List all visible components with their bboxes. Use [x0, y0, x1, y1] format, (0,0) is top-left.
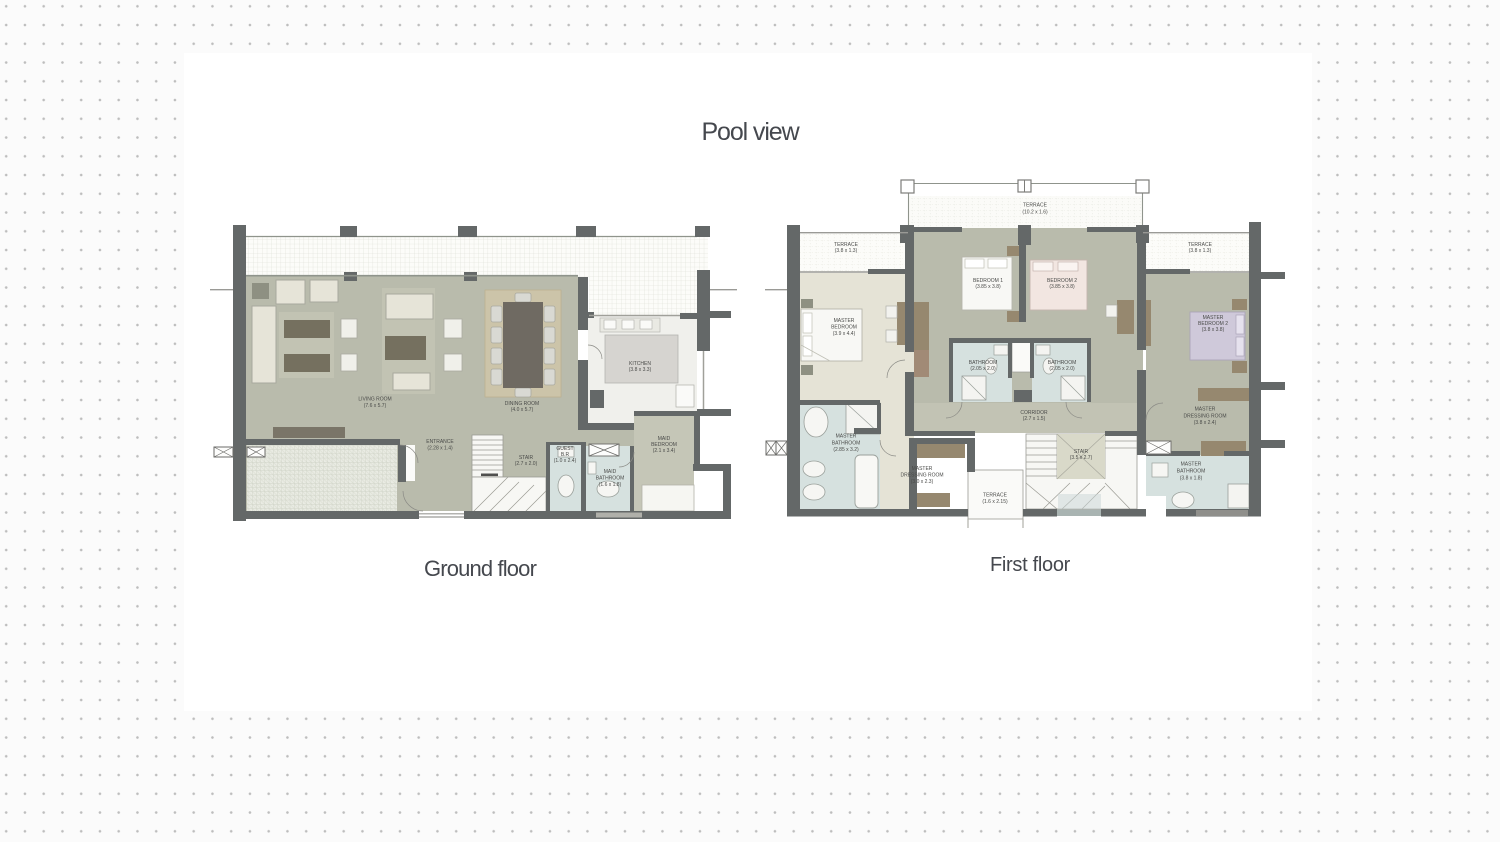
svg-text:(3.5 x 2.7): (3.5 x 2.7) [1070, 455, 1093, 461]
svg-text:MAID: MAID [604, 469, 617, 475]
svg-text:LIVING ROOM: LIVING ROOM [358, 397, 391, 403]
svg-text:DRESSING ROOM: DRESSING ROOM [1183, 414, 1226, 420]
svg-text:ENTRANCE: ENTRANCE [426, 439, 454, 445]
svg-text:(2.85 x 3.2): (2.85 x 3.2) [833, 447, 859, 453]
svg-text:(3.85 x 3.8): (3.85 x 3.8) [975, 284, 1001, 290]
svg-text:(3.0 x 2.3): (3.0 x 2.3) [911, 479, 934, 485]
svg-text:DRESSING ROOM: DRESSING ROOM [900, 473, 943, 479]
svg-text:BATHROOM: BATHROOM [1177, 469, 1206, 475]
svg-text:TERRACE: TERRACE [983, 493, 1008, 499]
svg-text:(3.85 x 3.8): (3.85 x 3.8) [1049, 284, 1075, 290]
svg-text:(3.8 x 3.8): (3.8 x 3.8) [1202, 327, 1225, 333]
svg-text:(4.0 x 5.7): (4.0 x 5.7) [511, 407, 534, 413]
svg-text:(3.8 x 3.3): (3.8 x 3.3) [629, 367, 652, 373]
svg-text:(1.0 x 2.4): (1.0 x 2.4) [554, 458, 577, 464]
svg-text:BEDROOM: BEDROOM [831, 325, 857, 331]
svg-text:(2.7 x 2.0): (2.7 x 2.0) [515, 461, 538, 467]
svg-text:MASTER: MASTER [836, 434, 857, 440]
svg-text:(10.2 x 1.6): (10.2 x 1.6) [1022, 210, 1048, 216]
svg-text:(1.6 x 1.8): (1.6 x 1.8) [599, 482, 622, 488]
svg-text:MASTER: MASTER [1195, 407, 1216, 413]
svg-text:(2.7 x 1.5): (2.7 x 1.5) [1023, 416, 1046, 422]
svg-text:(1.6 x 2.15): (1.6 x 2.15) [982, 499, 1008, 505]
svg-text:(2.1 x 3.4): (2.1 x 3.4) [653, 448, 676, 454]
svg-text:(3.8 x 2.4): (3.8 x 2.4) [1194, 420, 1217, 426]
svg-text:MASTER: MASTER [834, 318, 855, 324]
svg-text:TERRACE: TERRACE [1023, 203, 1048, 209]
svg-text:BATHROOM: BATHROOM [832, 441, 861, 447]
svg-text:(7.6 x 5.7): (7.6 x 5.7) [364, 403, 387, 409]
svg-text:(2.28 x 1.4): (2.28 x 1.4) [427, 446, 453, 452]
svg-text:MASTER: MASTER [1181, 462, 1202, 468]
svg-text:(3.8 x 1.3): (3.8 x 1.3) [835, 248, 858, 254]
svg-text:(2.05 x 2.0): (2.05 x 2.0) [970, 366, 996, 372]
svg-text:(3.9 x 4.4): (3.9 x 4.4) [833, 331, 856, 337]
svg-text:MASTER: MASTER [912, 466, 933, 472]
svg-text:(3.8 x 1.8): (3.8 x 1.8) [1180, 476, 1203, 482]
svg-text:BATHROOM: BATHROOM [596, 476, 625, 482]
svg-text:(3.8 x 1.3): (3.8 x 1.3) [1189, 248, 1212, 254]
svg-text:(2.05 x 2.0): (2.05 x 2.0) [1049, 366, 1075, 372]
